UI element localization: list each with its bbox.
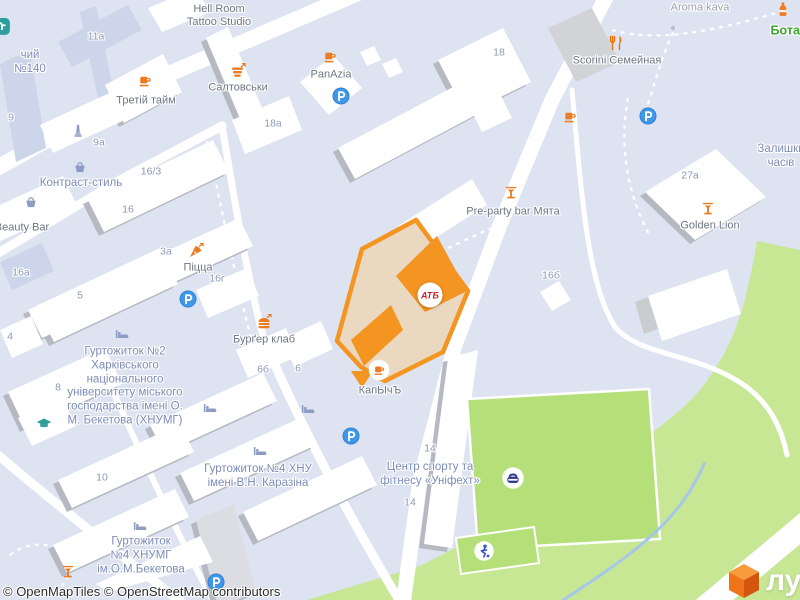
bottle-icon bbox=[776, 2, 791, 17]
cocktail-icon bbox=[504, 185, 519, 200]
bed-icon bbox=[301, 402, 315, 416]
cup-circle-icon bbox=[369, 360, 390, 381]
parking-icon bbox=[343, 428, 360, 445]
burger-icon bbox=[256, 314, 272, 330]
bed-icon bbox=[133, 519, 147, 533]
lun-logo[interactable]: лун bbox=[726, 562, 800, 600]
sports-circle-icon bbox=[502, 467, 524, 489]
attribution[interactable]: © OpenMapTiles © OpenStreetMap contribut… bbox=[3, 584, 280, 599]
lun-logo-text: лун bbox=[766, 564, 800, 598]
sports-pitch bbox=[467, 389, 660, 549]
basket-icon bbox=[24, 195, 39, 210]
shop-icon bbox=[230, 63, 246, 79]
cup-icon bbox=[563, 110, 578, 125]
restaurant-icon bbox=[608, 35, 624, 51]
parking-icon bbox=[640, 108, 657, 125]
graduation-cap-icon bbox=[36, 416, 52, 432]
atb-badge-label: АТБ bbox=[421, 290, 439, 300]
runner-circle-icon bbox=[474, 541, 494, 561]
basket-icon bbox=[73, 160, 88, 175]
cocktail-icon bbox=[701, 201, 716, 216]
lun-cube-icon bbox=[726, 562, 762, 600]
cup-icon bbox=[323, 50, 338, 65]
parking-icon bbox=[180, 291, 197, 308]
school-corner-icon bbox=[0, 18, 11, 36]
pizza-icon bbox=[188, 243, 204, 259]
cup-icon bbox=[138, 74, 153, 89]
atb-store-badge[interactable]: АТБ bbox=[418, 283, 443, 308]
monument-icon bbox=[71, 124, 85, 138]
bed-icon bbox=[203, 401, 217, 415]
base-map bbox=[0, 0, 800, 600]
bed-icon bbox=[253, 444, 267, 458]
gate-diamond-icon bbox=[669, 24, 677, 32]
parking-icon bbox=[333, 88, 350, 105]
bed-icon bbox=[115, 327, 129, 341]
cocktail-icon bbox=[61, 564, 76, 579]
map-canvas[interactable]: Hell Room Tattoo StudioТретій таймСалтов… bbox=[0, 0, 800, 600]
